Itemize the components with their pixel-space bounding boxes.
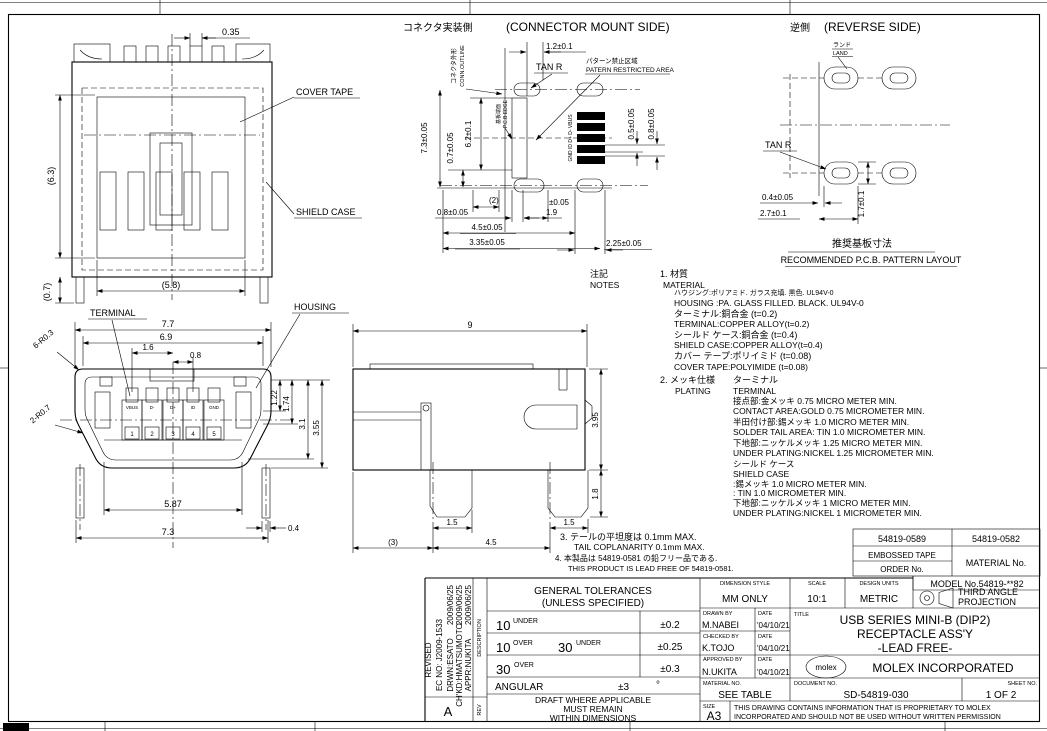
dim-6.2pm: 6.2±0.1 xyxy=(464,120,473,147)
dim-0.35: 0.35 xyxy=(222,27,240,37)
note1-line: カバー テープ:ポリイミド (t=0.08) xyxy=(674,351,811,361)
date-label: DATE xyxy=(758,611,773,617)
pattern-restricted-jp: パターン禁止区域 xyxy=(586,56,638,65)
projection-label2: PROJECTION xyxy=(958,597,1016,607)
tol-row1-tol: ±0.2 xyxy=(660,620,680,631)
note4-jp: 4. 本製品は 54819-0581 の鉛フリー品である. xyxy=(555,553,717,563)
sheet-no-value: 1 OF 2 xyxy=(986,690,1017,701)
dim-6.3: (6.3) xyxy=(46,167,56,186)
revision-checked: CH'KD:HMATSUMOTO xyxy=(455,623,464,706)
dim-7.3pm: 7.3±0.05 xyxy=(420,122,429,154)
document-no-label: DOCUMENT NO. xyxy=(794,681,837,687)
centering-mark xyxy=(3,723,29,731)
top-view: 0.35 (6.3) (0.7) (5.8) COVER TAPE SHIELD… xyxy=(42,27,362,303)
dim-3.95: 3.95 xyxy=(591,412,600,428)
pin-label: GND xyxy=(209,405,220,410)
embossed-tape-label: EMBOSSED TAPE xyxy=(868,551,936,560)
dim-2.7pm: 2.7±0.1 xyxy=(760,209,787,218)
material-no-label: MATERIAL No. xyxy=(966,558,1027,568)
dim-5.8: (5.8) xyxy=(162,280,181,290)
revision-date2: 2009/06/25 xyxy=(455,584,464,625)
design-units-value: METRIC xyxy=(860,594,898,605)
dim-1.2pm: 1.2±0.1 xyxy=(546,42,573,51)
drawn-date: '04/10/21 xyxy=(757,621,790,630)
pin-vbus: VBUS 1 xyxy=(122,388,142,440)
molex-logo-text: molex xyxy=(815,663,836,672)
note2-en: PLATING xyxy=(675,386,711,396)
size-value: A3 xyxy=(707,709,722,723)
note3-en: TAIL COPLANARITY 0.1mm MAX. xyxy=(574,542,705,552)
pin-gnd: GND 5 xyxy=(204,388,224,440)
conn-outline-en: CONN.OUTLINE xyxy=(460,45,466,87)
scale-value: 10:1 xyxy=(807,594,827,605)
angular-label: ANGULAR xyxy=(495,682,543,693)
angular-tol: ±3 xyxy=(618,682,629,693)
notes-label-jp: 注記 xyxy=(590,268,608,279)
dim-1.5-left: 1.5 xyxy=(446,518,458,527)
dimension-style-value: MM ONLY xyxy=(722,594,768,605)
title-label: TITLE xyxy=(794,612,809,618)
tol-row1-value: 10 xyxy=(496,618,510,633)
note2-shield-line: SHIELD CASE xyxy=(733,469,790,479)
reverse-title-jp: 逆側 xyxy=(790,21,810,34)
approved-date: '04/10/21 xyxy=(757,668,790,677)
dim-6.9: 6.9 xyxy=(160,332,173,342)
note1-line: SHIELD CASE:COPPER ALLOY(t=0.4) xyxy=(674,340,823,350)
pin-number: 3 xyxy=(171,432,175,438)
tol-row2-tol: ±0.25 xyxy=(658,642,683,653)
dim-1.8: 1.8 xyxy=(591,488,600,500)
description-column-label: DESCRIPTION xyxy=(477,619,483,657)
note3-jp: 3. テールの平坦度は 0.1mm MAX. xyxy=(560,531,697,542)
drawn-by-value: M.NABEI xyxy=(702,620,739,630)
land-label-en: LAND xyxy=(833,51,848,57)
pin-label: VBUS xyxy=(126,405,138,410)
tol-row3-tol: ±0.3 xyxy=(660,664,680,675)
note2-sub-en: TERMINAL xyxy=(733,386,776,396)
dim-9: 9 xyxy=(467,320,472,330)
pin-number: 2 xyxy=(150,432,154,438)
reverse-tan-r: TAN R xyxy=(765,140,792,150)
pattern-restricted-en: PATERN RESTRICTED AREA xyxy=(586,67,675,74)
note1-line: シールド ケース:銅合金 (t=0.4) xyxy=(674,329,797,340)
note1-line: HOUSING :PA. GLASS FILLED. BLACK. UL94V-… xyxy=(674,298,864,308)
note2-line: CONTACT AREA:GOLD 0.75 MICROMETER MIN. xyxy=(733,406,924,416)
projection-label1: THIRD ANGLE xyxy=(958,587,1018,597)
note1-jp: 1. 材質 xyxy=(660,268,688,279)
notes-label-en: NOTES xyxy=(590,280,620,290)
material-no-label: MATERIAL NO. xyxy=(703,681,742,687)
note2-jp: 2. メッキ仕様 xyxy=(660,374,715,385)
note1-line: ハウジング:ポリアミド. ガラス充填. 黒色. UL94V-0 xyxy=(674,288,834,297)
pin-dminus: D- 2 xyxy=(142,388,162,440)
approved-by-label: APPROVED BY xyxy=(703,657,743,663)
material-no-value: SEE TABLE xyxy=(718,690,772,701)
note2-shield-line: シールド ケース xyxy=(733,459,794,469)
tolerances-header: GENERAL TOLERANCES xyxy=(534,586,652,597)
note4-en: THIS PRODUCT IS LEAD FREE OF 54819-0581. xyxy=(568,564,734,573)
dim-1.22: 1.22 xyxy=(270,390,279,406)
sheet-no-label: SHEET NO. xyxy=(1007,681,1037,687)
checked-by-value: K.TOJO xyxy=(702,643,734,653)
angular-degree: ° xyxy=(656,680,660,691)
pin-number: 4 xyxy=(191,432,195,438)
company-name: MOLEX INCORPORATED xyxy=(872,661,1013,675)
pin-number: 5 xyxy=(212,432,216,438)
note2-sub-jp: ターミナル xyxy=(733,375,778,385)
note1-line: ターミナル:銅合金 (t=0.2) xyxy=(674,308,777,319)
revision-date1: 2009/06/25 xyxy=(446,584,455,625)
mount-title-en: (CONNECTOR MOUNT SIDE) xyxy=(506,20,670,34)
housing-label: HOUSING xyxy=(294,302,336,312)
tol-row3-value: 30 xyxy=(496,662,510,677)
dim-0.4pm: 0.4±0.05 xyxy=(762,193,794,202)
pcb-edge-jp: 基板端面 xyxy=(495,104,502,124)
tol-row2-cond2: UNDER xyxy=(576,640,601,647)
note2-shield-line: 下地部:ニッケルメッキ 1 MICRO METER MIN. xyxy=(733,498,911,508)
tol-row2-value2: 30 xyxy=(558,640,572,655)
pcb-edge-en: P.C.B EDGE xyxy=(503,99,509,128)
revision-ec-no: EC NO: J2009-1533 xyxy=(435,618,444,691)
tol-row1-cond: UNDER xyxy=(513,618,538,625)
tol-row2-cond1: OVER xyxy=(513,640,533,647)
pin-label: ID xyxy=(191,405,196,410)
front-view: TERMINAL HOUSING VBUS 1 D- 2 D+ 3 ID 4 xyxy=(28,302,349,548)
scale-label: SCALE xyxy=(808,581,826,587)
dim-3: (3) xyxy=(388,538,398,547)
mount-side-view: コネクタ実装側 (CONNECTOR MOUNT SIDE) GND ID D+… xyxy=(403,20,675,254)
pin-label: D- xyxy=(150,405,155,410)
conn-outline-jp: コネクタ外形 xyxy=(450,48,458,84)
dim-2: (2) xyxy=(489,196,499,205)
mount-title-jp: コネクタ実装側 xyxy=(403,21,473,34)
reverse-side-view: 逆側 (REVERSE SIDE) ランド LAND TAN R 0.4±0.0… xyxy=(758,20,962,267)
dim-0.4: 0.4 xyxy=(288,524,300,533)
document-no-value: SD-54819-030 xyxy=(843,690,908,701)
checked-date: '04/10/21 xyxy=(757,644,790,653)
dim-3.1: 3.1 xyxy=(298,418,307,430)
checked-by-label: CHECKED BY xyxy=(703,634,739,640)
pcb-lands xyxy=(824,67,916,184)
reverse-title-en: (REVERSE SIDE) xyxy=(824,20,921,34)
tan-r-label: TAN R xyxy=(536,62,563,72)
note1-line: COVER TAPE:POLYIMIDE (t=0.08) xyxy=(674,362,808,372)
tolerances-subheader: (UNLESS SPECIFIED) xyxy=(542,598,644,609)
pad-net-labels: GND ID D+ D- VBUS xyxy=(568,114,574,162)
shield-case-label: SHIELD CASE xyxy=(296,207,356,217)
pin-number: 1 xyxy=(130,432,134,438)
dim-0.7pm: 0.7±0.05 xyxy=(446,132,455,164)
drawing-title-line3: -LEAD FREE- xyxy=(878,641,953,655)
dim-3.55: 3.55 xyxy=(312,420,321,436)
tolerances-footer3: WITHIN DIMENSIONS xyxy=(550,713,637,723)
dim-7.3: 7.3 xyxy=(162,527,175,537)
molex-logo: molex xyxy=(806,656,846,678)
note2-line: UNDER PLATING:NICKEL 1.25 MICROMETER MIN… xyxy=(733,448,934,458)
note2-line: 接点部:金メッキ 0.75 MICRO METER MIN. xyxy=(733,396,897,406)
dim-0.5pm: 0.5±0.05 xyxy=(627,108,636,140)
pcb-caption-jp: 推奨基板寸法 xyxy=(832,237,892,250)
dim-5.87: 5.87 xyxy=(164,499,182,509)
date-label: DATE xyxy=(758,657,773,663)
land-label-jp: ランド xyxy=(833,42,851,49)
order-no-label: ORDER No. xyxy=(880,565,924,574)
tol-row3-cond: OVER xyxy=(514,662,534,669)
title-block: GENERAL TOLERANCES (UNLESS SPECIFIED) 10… xyxy=(425,576,1040,723)
dim-0.8pm-bottom: 0.8±0.05 xyxy=(437,208,469,217)
revision-letter: A xyxy=(444,704,453,719)
note2-shield-line: UNDER PLATING:NICKEL 1 MICROMETER MIN. xyxy=(733,508,922,518)
cover-tape-label: COVER TAPE xyxy=(296,87,353,97)
engineering-drawing: 0.35 (6.3) (0.7) (5.8) COVER TAPE SHIELD… xyxy=(0,0,1047,731)
proprietary-line1: THIS DRAWING CONTAINS INFORMATION THAT I… xyxy=(734,705,991,712)
rev-column-label: REV xyxy=(477,704,483,716)
side-view: 9 3.95 1.8 1.5 1.5 (3) 4.5 xyxy=(353,320,608,553)
revision-date3: 2009/06/25 xyxy=(464,584,473,625)
dim-1.5-right: 1.5 xyxy=(563,518,575,527)
terminal-label: TERMINAL xyxy=(90,308,136,318)
dim-0.8pm-right: 0.8±0.05 xyxy=(647,108,656,140)
material-no-value: 54819-0582 xyxy=(972,534,1020,544)
date-label: DATE xyxy=(758,634,773,640)
third-angle-projection-icon xyxy=(920,588,953,608)
pcb-caption-en: RECOMMENDED P.C.B. PATTERN LAYOUT xyxy=(781,255,962,265)
general-tolerances: GENERAL TOLERANCES (UNLESS SPECIFIED) 10… xyxy=(487,586,700,723)
drawing-title-line2: RECEPTACLE ASS'Y xyxy=(857,627,973,641)
note2-line: 半田付け部:錫メッキ 1.0 MICRO METER MIN. xyxy=(733,417,909,427)
notes: 注記 NOTES 1. 材質 MATERIAL ハウジング:ポリアミド. ガラス… xyxy=(555,268,934,573)
dim-7.7: 7.7 xyxy=(162,319,175,329)
embossed-tape-order-no: 54819-0589 xyxy=(878,534,926,544)
dim-0.7: (0.7) xyxy=(42,283,52,302)
note2-shield-line: : TIN 1.0 MICROMETER MIN. xyxy=(733,488,846,498)
solder-pads xyxy=(577,112,605,164)
design-units-label: DESIGN UNITS xyxy=(859,581,898,587)
dim-1.9: 1.9 xyxy=(546,208,558,217)
drawing-title-line1: USB SERIES MINI-B (DIP2) xyxy=(840,613,991,627)
revision-approved: APPR:NUKITA xyxy=(464,638,473,691)
dim-6-r0.3: 6-R0.3 xyxy=(31,328,56,351)
note2-line: SOLDER TAIL AREA: TIN 1.0 MICROMETER MIN… xyxy=(733,427,925,437)
note1-line: TERMINAL:COPPER ALLOY(t=0.2) xyxy=(674,319,810,329)
cover-tape-hatch xyxy=(97,97,245,258)
revision-drawn: DRWN:ESATO xyxy=(446,638,455,691)
tol-row2-value1: 10 xyxy=(496,640,510,655)
pin-id: ID 4 xyxy=(183,388,203,440)
dimension-style-label: DIMENSION STYLE xyxy=(720,581,770,587)
dim-2-r0.7: 2-R0.7 xyxy=(28,403,53,426)
dim-pm005: ±0.05 xyxy=(549,198,570,207)
dim-2.25pm: 2.25±0.05 xyxy=(606,239,642,248)
approved-by-value: N.UKITA xyxy=(702,667,737,677)
revision-status: REVISED xyxy=(424,642,433,677)
dim-4.5pm: 4.5±0.05 xyxy=(471,223,503,232)
dim-1.74: 1.74 xyxy=(282,396,291,412)
dim-0.8: 0.8 xyxy=(190,351,202,360)
proprietary-line2: INCORPORATED AND SHOULD NOT BE USED WITH… xyxy=(734,714,1001,721)
dim-3.35pm: 3.35±0.05 xyxy=(469,238,505,247)
dim-1.6: 1.6 xyxy=(142,343,154,352)
revision-block: REVISED EC NO: J2009-1533 DRWN:ESATO 200… xyxy=(424,584,487,719)
dim-1.7pm: 1.7±0.1 xyxy=(857,190,866,217)
drawn-by-label: DRAWN BY xyxy=(703,611,733,617)
dim-4.5: 4.5 xyxy=(485,538,497,547)
note2-line: 下地部:ニッケルメッキ 1.25 MICRO METER MIN. xyxy=(733,438,922,448)
note1-en: MATERIAL xyxy=(663,280,705,290)
